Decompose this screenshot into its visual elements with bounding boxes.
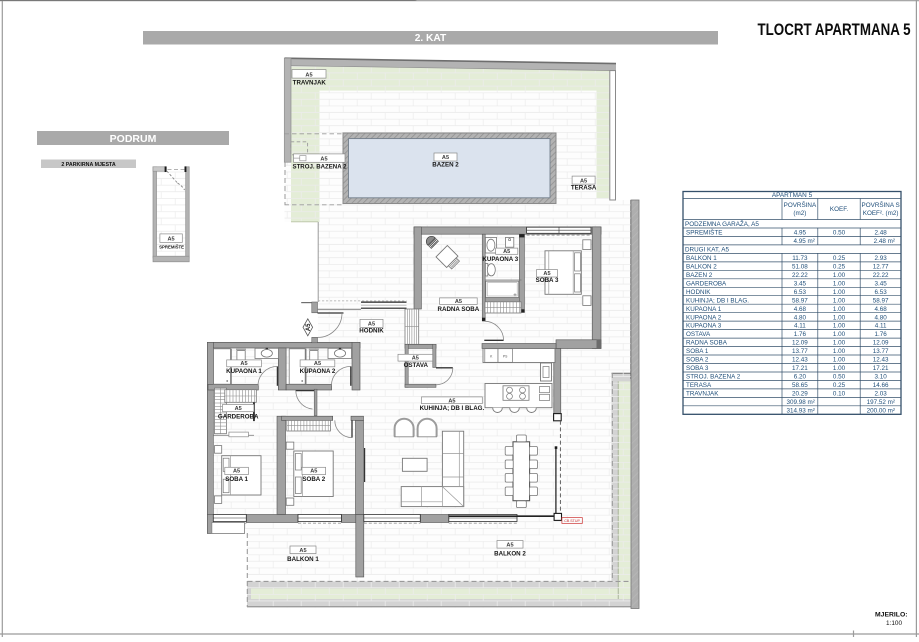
svg-text:309.98 m²: 309.98 m² (786, 399, 814, 406)
svg-text:12.43: 12.43 (792, 357, 808, 364)
svg-text:0.50: 0.50 (833, 230, 846, 237)
svg-text:0.50: 0.50 (833, 374, 846, 381)
svg-text:A5: A5 (306, 323, 312, 331)
svg-text:1.00: 1.00 (833, 297, 846, 304)
svg-text:3.10: 3.10 (874, 374, 887, 381)
svg-text:KOEF². (m2): KOEF². (m2) (863, 210, 899, 217)
svg-text:22.22: 22.22 (873, 272, 889, 279)
svg-text:BALKON 1: BALKON 1 (686, 255, 717, 262)
svg-text:0.25: 0.25 (833, 263, 846, 270)
svg-text:200.00 m²: 200.00 m² (867, 407, 895, 414)
svg-text:2.93: 2.93 (874, 255, 887, 262)
svg-text:A5: A5 (320, 156, 327, 162)
svg-text:1.00: 1.00 (833, 289, 846, 296)
svg-text:3.45: 3.45 (794, 280, 807, 287)
svg-text:KUPAONA 1: KUPAONA 1 (686, 306, 722, 313)
svg-text:58.97: 58.97 (873, 297, 889, 304)
svg-text:2.48 m²: 2.48 m² (874, 238, 895, 245)
svg-text:A5: A5 (448, 398, 455, 404)
svg-text:13.77: 13.77 (792, 348, 808, 355)
svg-text:58.65: 58.65 (792, 382, 808, 389)
svg-text:12.09: 12.09 (792, 340, 808, 347)
svg-text:1.00: 1.00 (833, 306, 846, 313)
svg-text:6.53: 6.53 (874, 289, 887, 296)
svg-text:1.00: 1.00 (833, 314, 846, 321)
svg-text:HODNIK: HODNIK (686, 289, 711, 296)
svg-text:SPREMIŠTE: SPREMIŠTE (159, 245, 184, 250)
svg-text:CB STUP: CB STUP (564, 519, 580, 523)
svg-text:BAZEN 2: BAZEN 2 (432, 162, 459, 169)
svg-text:0.25: 0.25 (833, 255, 846, 262)
svg-text:4.80: 4.80 (874, 314, 887, 321)
svg-text:SOBA 3: SOBA 3 (536, 277, 559, 284)
svg-text:(m2): (m2) (793, 210, 806, 217)
svg-text:51.08: 51.08 (792, 263, 808, 270)
svg-text:4.68: 4.68 (874, 306, 887, 313)
svg-text:1.00: 1.00 (833, 357, 846, 364)
svg-text:2 PARKIRNA MJESTA: 2 PARKIRNA MJESTA (61, 162, 116, 168)
svg-text:KUPAONA 3: KUPAONA 3 (686, 323, 722, 330)
svg-text:KUHINJA; DB I BLAG.: KUHINJA; DB I BLAG. (686, 297, 749, 304)
svg-text:4.95: 4.95 (794, 230, 807, 237)
svg-text:A5: A5 (412, 356, 419, 362)
svg-text:1.00: 1.00 (833, 323, 846, 330)
svg-text:0.10: 0.10 (833, 391, 846, 398)
svg-text:0.25: 0.25 (833, 382, 846, 389)
svg-text:6.20: 6.20 (794, 374, 807, 381)
svg-text:1.00: 1.00 (833, 365, 846, 372)
svg-text:4.80: 4.80 (794, 314, 807, 321)
svg-text:22.22: 22.22 (792, 272, 808, 279)
svg-text:A5: A5 (233, 469, 240, 475)
svg-text:MJERILO:: MJERILO: (875, 612, 907, 619)
svg-text:BALKON 2: BALKON 2 (494, 551, 526, 558)
svg-text:4.68: 4.68 (794, 306, 807, 313)
svg-text:A5: A5 (168, 237, 175, 243)
svg-text:1:100: 1:100 (886, 620, 902, 627)
svg-text:11.73: 11.73 (792, 255, 808, 262)
svg-text:STROJ. BAZENA 2: STROJ. BAZENA 2 (293, 164, 348, 171)
svg-text:KUPAONA 2: KUPAONA 2 (686, 314, 722, 321)
svg-text:HODNIK: HODNIK (359, 327, 384, 334)
svg-text:A5: A5 (506, 542, 513, 548)
svg-text:6.53: 6.53 (794, 289, 807, 296)
svg-text:KUPAONA 1: KUPAONA 1 (226, 368, 262, 375)
svg-text:TRAVNJAK: TRAVNJAK (686, 391, 719, 398)
svg-text:12.77: 12.77 (873, 263, 889, 270)
svg-text:RADNA SOBA: RADNA SOBA (438, 306, 480, 313)
svg-text:TERASA: TERASA (686, 382, 712, 389)
svg-text:2.48: 2.48 (874, 230, 887, 237)
svg-text:APARTMAN 5: APARTMAN 5 (772, 192, 813, 199)
svg-text:SOBA 3: SOBA 3 (686, 365, 709, 372)
svg-text:1.76: 1.76 (794, 331, 807, 338)
svg-text:KUPAONA 3: KUPAONA 3 (482, 256, 518, 263)
svg-text:POVRŠINA: POVRŠINA (784, 200, 817, 209)
svg-text:1.00: 1.00 (833, 272, 846, 279)
svg-text:PODZEMNA GARAŽA, A5: PODZEMNA GARAŽA, A5 (685, 219, 759, 228)
svg-text:A5: A5 (455, 299, 462, 305)
svg-text:197.52 m²: 197.52 m² (867, 399, 895, 406)
svg-text:314.93 m²: 314.93 m² (786, 407, 814, 414)
svg-text:A5: A5 (442, 155, 449, 161)
svg-text:SOBA 2: SOBA 2 (302, 476, 325, 483)
svg-text:KOEF.: KOEF. (830, 206, 848, 213)
svg-text:BALKON 1: BALKON 1 (287, 556, 319, 563)
svg-text:2.03: 2.03 (874, 391, 887, 398)
svg-text:BAZEN 2: BAZEN 2 (686, 272, 713, 279)
svg-text:RADNA SOBA: RADNA SOBA (686, 340, 728, 347)
svg-text:SOBA 2: SOBA 2 (686, 357, 709, 364)
svg-text:KUHINJA; DB I BLAG.: KUHINJA; DB I BLAG. (420, 405, 485, 412)
svg-text:PS: PS (503, 354, 508, 358)
svg-text:GARDEROBA: GARDEROBA (686, 280, 727, 287)
svg-text:STROJ. BAZENA 2: STROJ. BAZENA 2 (686, 374, 741, 381)
svg-text:4.95 m²: 4.95 m² (793, 238, 814, 245)
svg-text:TERASA: TERASA (571, 185, 597, 192)
svg-text:TLOCRT APARTMANA 5: TLOCRT APARTMANA 5 (758, 21, 911, 39)
svg-text:A5: A5 (240, 361, 247, 367)
svg-text:POVRŠINA S: POVRŠINA S (862, 200, 900, 209)
svg-text:4.11: 4.11 (794, 323, 806, 330)
svg-text:58.97: 58.97 (792, 297, 808, 304)
svg-text:OSTAVA: OSTAVA (686, 331, 711, 338)
svg-text:1.00: 1.00 (833, 348, 846, 355)
svg-text:1.00: 1.00 (833, 331, 846, 338)
svg-text:17.21: 17.21 (873, 365, 889, 372)
svg-text:OSTAVA: OSTAVA (404, 362, 429, 369)
svg-text:20.29: 20.29 (792, 391, 808, 398)
svg-text:SOBA 1: SOBA 1 (225, 476, 248, 483)
svg-text:2. KAT: 2. KAT (415, 33, 447, 44)
svg-text:A5: A5 (580, 178, 587, 184)
svg-text:3.45: 3.45 (874, 280, 887, 287)
svg-text:A5: A5 (299, 548, 306, 554)
svg-text:1.76: 1.76 (874, 331, 887, 338)
svg-text:12.09: 12.09 (873, 340, 889, 347)
svg-text:BALKON 2: BALKON 2 (686, 263, 717, 270)
svg-text:A5: A5 (503, 249, 510, 255)
svg-text:1.00: 1.00 (833, 340, 846, 347)
svg-text:DRUGI KAT, A5: DRUGI KAT, A5 (685, 247, 729, 254)
svg-text:17.21: 17.21 (792, 365, 808, 372)
svg-text:12.43: 12.43 (873, 357, 889, 364)
svg-text:PODRUM: PODRUM (110, 133, 157, 145)
svg-text:A5: A5 (314, 361, 321, 367)
svg-text:A5: A5 (310, 469, 317, 475)
svg-text:TRAVNJAK: TRAVNJAK (293, 79, 327, 86)
svg-text:SOBA 1: SOBA 1 (686, 348, 709, 355)
svg-text:KUPAONA 2: KUPAONA 2 (300, 368, 336, 375)
svg-text:GARDEROBA: GARDEROBA (218, 413, 259, 420)
svg-text:4.11: 4.11 (875, 323, 887, 330)
svg-text:13.77: 13.77 (873, 348, 889, 355)
svg-text:SPREMIŠTE: SPREMIŠTE (686, 228, 722, 237)
svg-text:14.66: 14.66 (873, 382, 889, 389)
svg-text:A5: A5 (305, 72, 312, 78)
svg-text:A5: A5 (235, 406, 242, 412)
svg-text:1.00: 1.00 (833, 280, 846, 287)
